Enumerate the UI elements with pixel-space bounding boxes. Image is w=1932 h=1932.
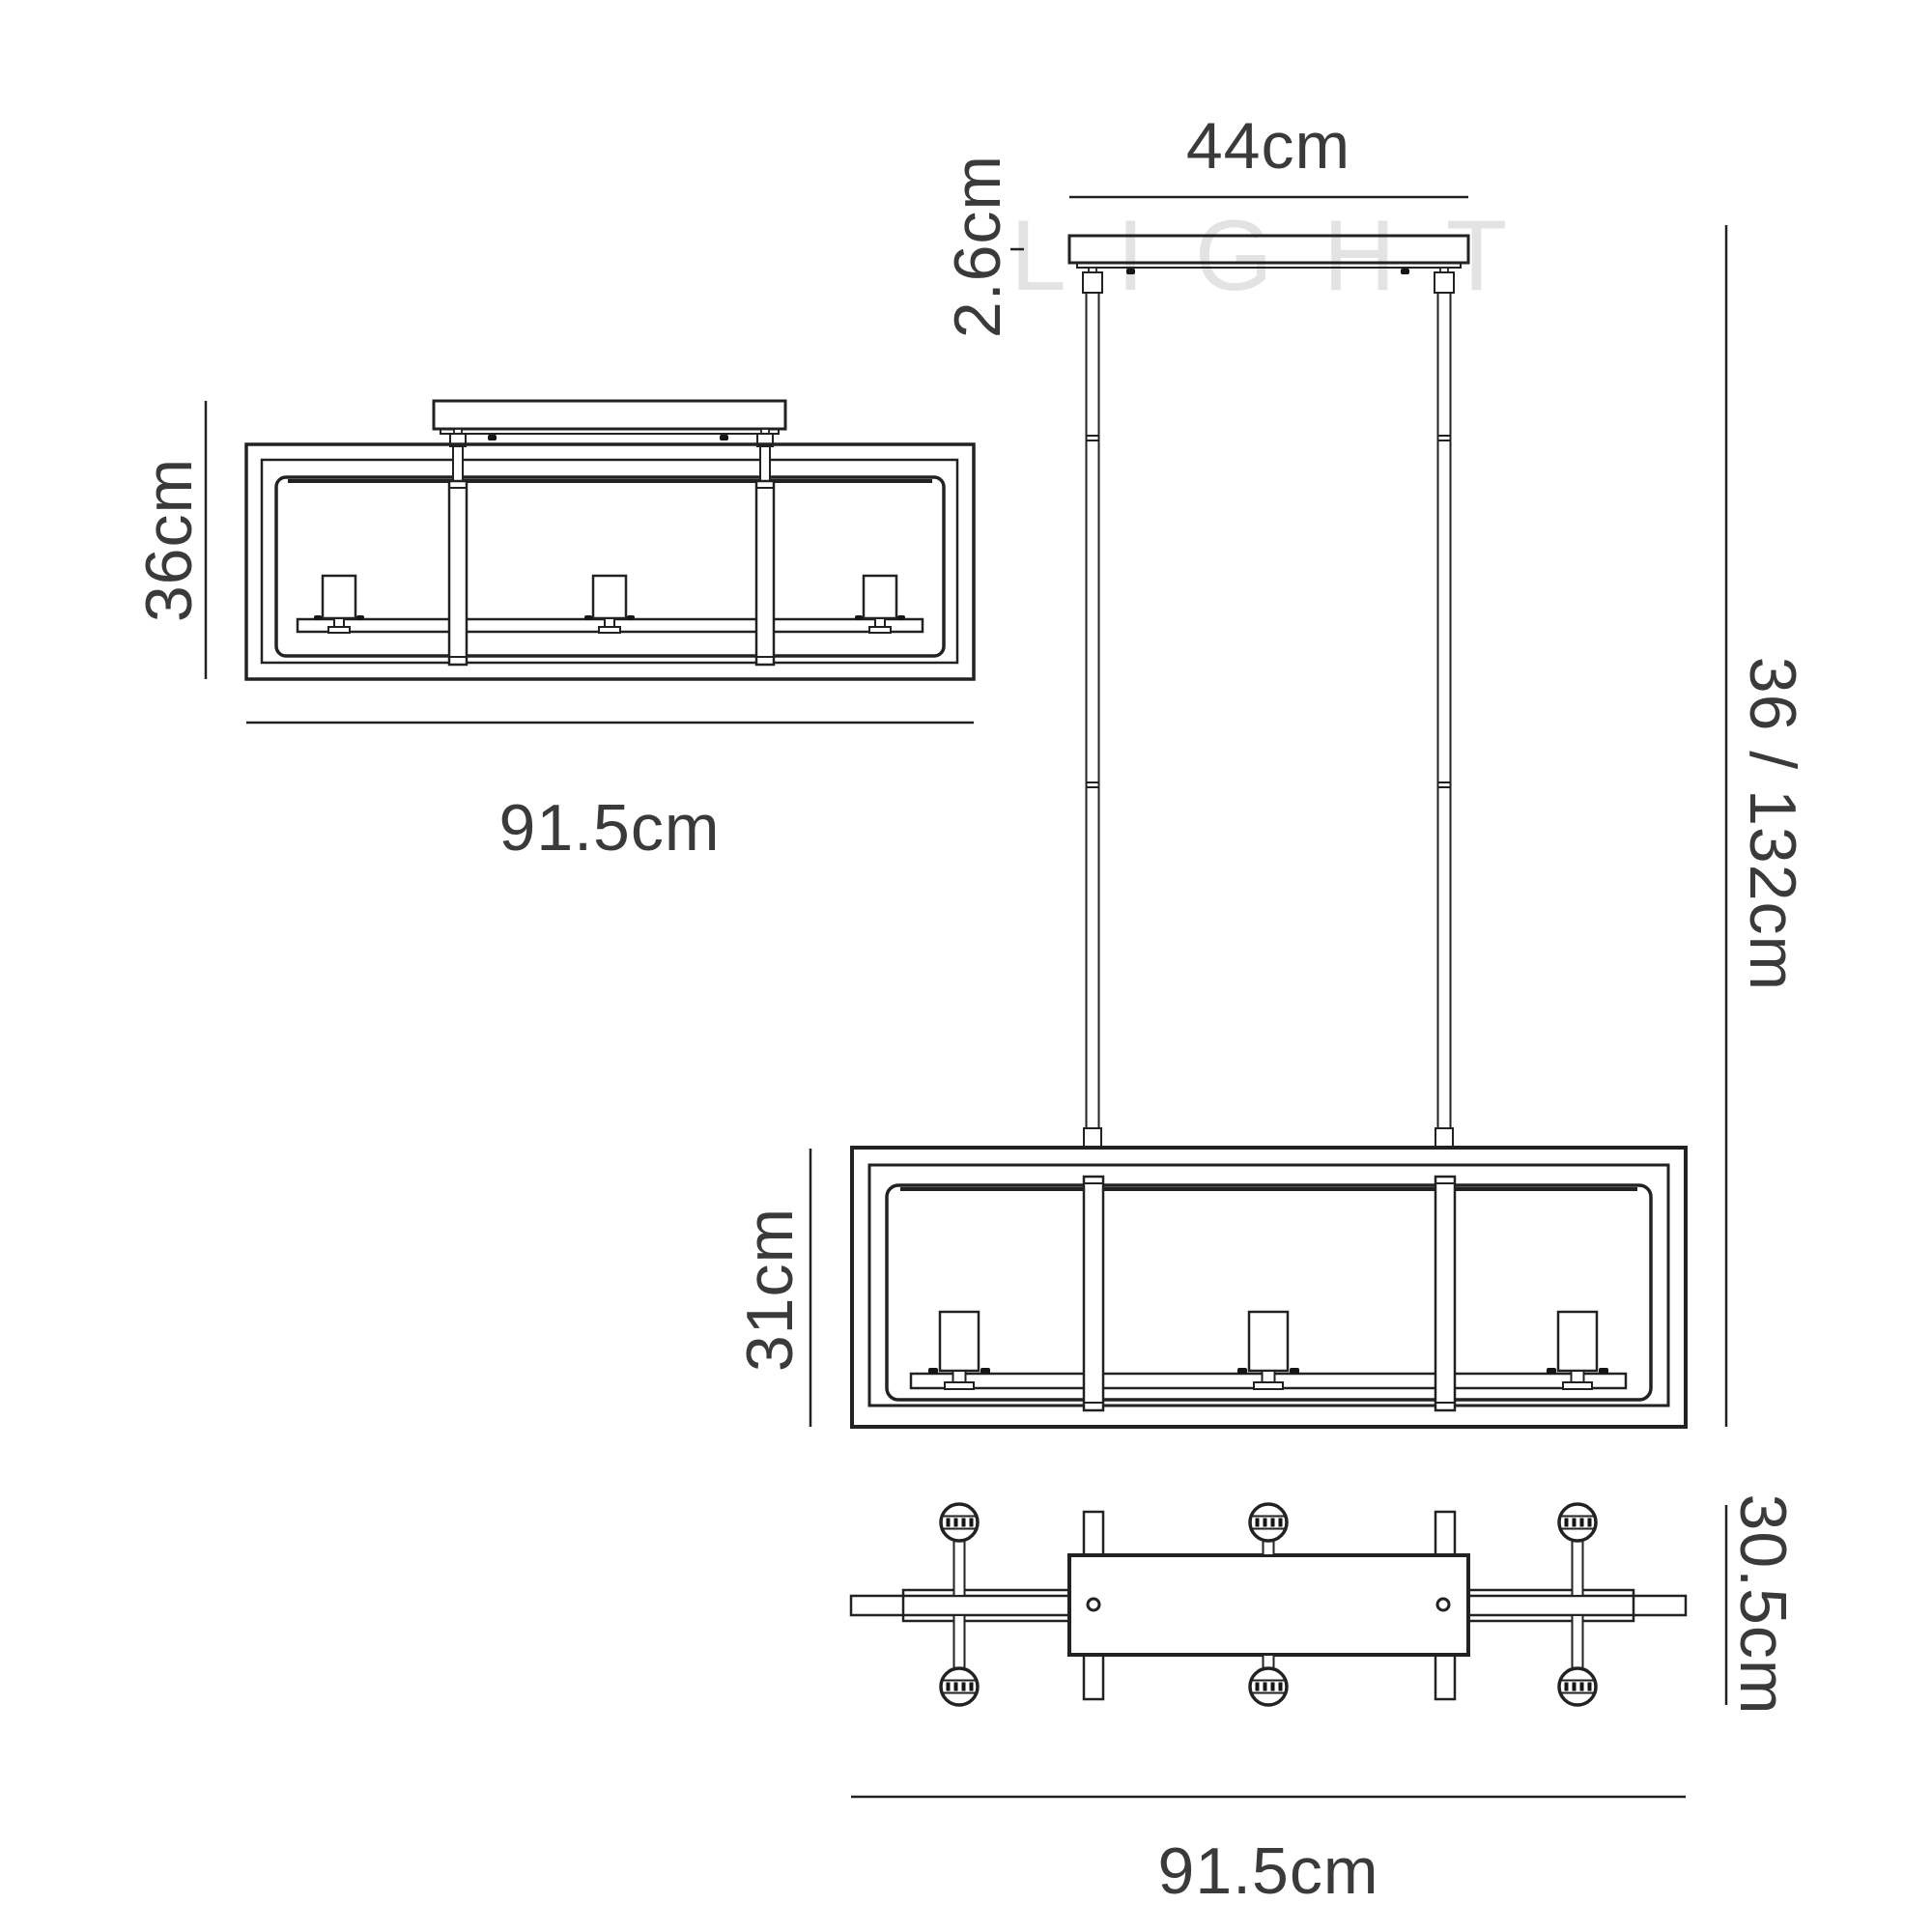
dimension-drop-height: 36 / 132cm bbox=[1726, 225, 1809, 1427]
dimension-canopy-width: 44cm bbox=[1069, 109, 1468, 197]
lamp-stem bbox=[1264, 1655, 1274, 1668]
lamp-holder-top bbox=[941, 1668, 978, 1705]
dim-label-canopy-width: 44cm bbox=[1186, 109, 1350, 183]
suspension-rod-right bbox=[1435, 268, 1454, 1148]
support-post-left bbox=[1084, 1177, 1103, 1410]
support-post-right bbox=[756, 446, 774, 665]
candle-lamp bbox=[928, 1312, 990, 1389]
ceiling-plate bbox=[434, 401, 785, 440]
lamp-holder-top bbox=[1559, 1504, 1596, 1541]
rod-post bbox=[1435, 1655, 1455, 1699]
mounting-plate bbox=[1069, 1555, 1468, 1655]
candle-lamp bbox=[584, 576, 635, 633]
semi-flush-view: 36cm 91.5cm bbox=[132, 401, 974, 865]
candle-lamp bbox=[1547, 1312, 1608, 1389]
support-post-right bbox=[1435, 1177, 1455, 1410]
dim-label-plan-width: 91.5cm bbox=[1158, 1834, 1379, 1908]
dim-label-plan-depth: 30.5cm bbox=[1726, 1494, 1800, 1716]
lamp-stem bbox=[954, 1615, 965, 1668]
candle-lamp bbox=[1237, 1312, 1299, 1389]
candle-lamp bbox=[314, 576, 364, 633]
screw-dot bbox=[488, 435, 497, 440]
technical-drawing-canvas: LIGHT bbox=[0, 0, 1932, 1932]
lamp-holder-top bbox=[1250, 1668, 1287, 1705]
lamp-holder-top bbox=[941, 1504, 978, 1541]
lamp-stem bbox=[1264, 1541, 1274, 1555]
rod-post bbox=[1084, 1512, 1103, 1555]
dimension-semi-flush-height: 36cm bbox=[132, 401, 206, 679]
dim-label-frame-height: 31cm bbox=[733, 1207, 807, 1372]
plan-view: 30.5cm 91.5cm bbox=[851, 1494, 1800, 1909]
dim-label-drop-height: 36 / 132cm bbox=[1736, 657, 1809, 991]
screw-dot bbox=[1126, 269, 1135, 274]
dim-label-semi-flush-height: 36cm bbox=[132, 458, 206, 622]
dimension-semi-flush-width: 91.5cm bbox=[246, 723, 974, 865]
product-dimension-sheet: LIGHT bbox=[0, 0, 1932, 1932]
lamp-stem bbox=[954, 1541, 965, 1596]
dimension-canopy-thickness: 2.6cm bbox=[941, 155, 1024, 338]
lamp-stem bbox=[1573, 1541, 1583, 1596]
candle-lamp bbox=[855, 576, 905, 633]
screw-dot bbox=[720, 435, 728, 440]
rod-post bbox=[1084, 1655, 1103, 1699]
dimension-plan-depth: 30.5cm bbox=[1726, 1494, 1800, 1716]
rod-post bbox=[1435, 1512, 1455, 1555]
dim-label-canopy-thickness: 2.6cm bbox=[941, 155, 1014, 338]
dimension-plan-width: 91.5cm bbox=[851, 1797, 1686, 1908]
dimension-frame-height: 31cm bbox=[733, 1149, 810, 1427]
lamp-holder-top bbox=[1250, 1504, 1287, 1541]
dim-label-semi-flush-width: 91.5cm bbox=[499, 791, 721, 865]
support-post-left bbox=[449, 446, 467, 665]
lamp-holder-top bbox=[1559, 1668, 1596, 1705]
suspension-rod-left bbox=[1083, 268, 1102, 1148]
lamp-stem bbox=[1573, 1615, 1583, 1668]
screw-dot bbox=[1401, 269, 1409, 274]
